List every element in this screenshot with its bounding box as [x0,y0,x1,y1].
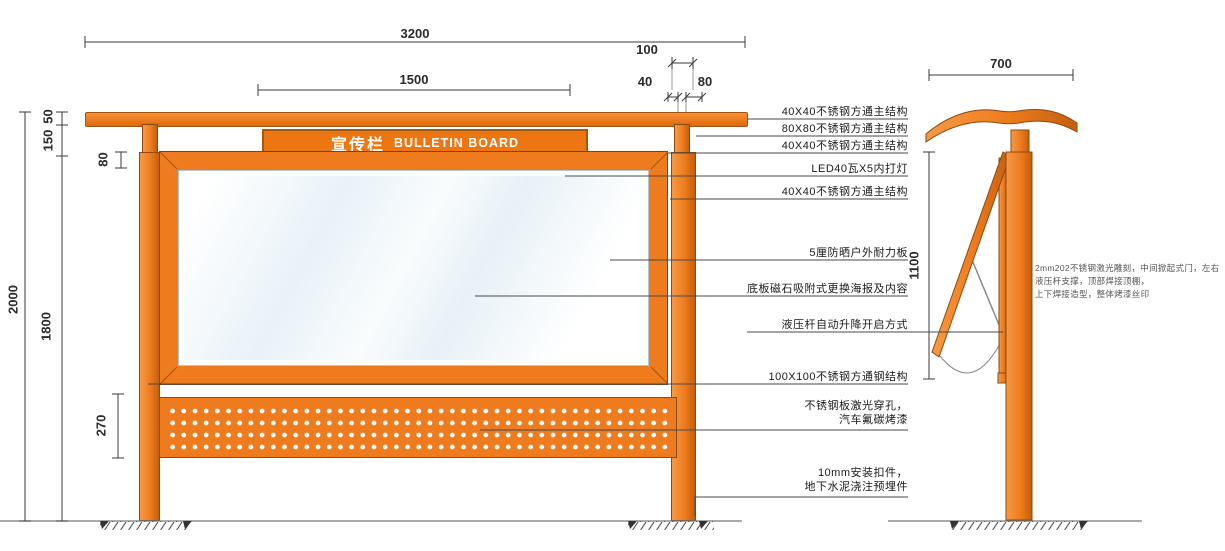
bulletin-board-drawing: 宣传栏 BULLETIN BOARD [0,0,1225,551]
annotation-anchor-line2: 地下水泥浇注预埋件 [805,481,909,493]
frame-bevels [160,152,668,384]
annotation-40x40-tube-1: 40X40不锈钢方通主结构 [782,106,908,118]
door-swing-arc [940,336,1004,373]
annotation-hydraulic-open: 液压杆自动升降开启方式 [782,319,909,331]
dim-40: 40 [625,74,665,89]
dim-150: 150 [41,111,56,171]
dim-3200: 3200 [365,26,465,41]
dim-1800: 1800 [39,297,54,357]
annotation-anchor: 10mm安装扣件， 地下水泥浇注预埋件 [805,467,909,495]
ground-hatching [100,521,1088,530]
side-process-note: 2mm202不锈钢激光雕刻，中间掀起式门，左右 液压杆支撑，顶部焊接顶棚， 上下… [1035,262,1225,301]
annotation-perforation-line2: 汽车氟碳烤漆 [805,414,909,426]
annotation-100x100-structure: 100X100不锈钢方通钢结构 [768,371,908,383]
leader-lines [148,119,1003,516]
annotation-magnet-poster: 底板磁石吸附式更换海报及内容 [747,283,908,295]
side-post-stub [1011,130,1029,154]
dim-80-top: 80 [685,74,725,89]
annotation-40x40-tube-3: 40X40不锈钢方通主结构 [782,186,908,198]
side-post [1006,152,1032,520]
dim-100: 100 [622,42,672,57]
side-note-line1: 2mm202不锈钢激光雕刻，中间掀起式门，左右 [1035,262,1225,275]
annotation-anchor-line1: 10mm安装扣件， [805,467,909,479]
dim-1500: 1500 [364,72,464,87]
side-note-line2: 液压杆支撑，顶部焊接顶棚， [1035,275,1225,288]
side-lifted-door [932,152,1010,357]
dim-270: 270 [94,396,109,456]
dim-80-left: 80 [96,130,111,190]
side-canopy-wing [926,110,1077,143]
hydraulic-rod [970,255,1002,332]
side-view [926,110,1077,521]
annotation-80x80-tube: 80X80不锈钢方通主结构 [782,123,908,135]
dim-2000: 2000 [6,270,21,330]
annotation-40x40-tube-2: 40X40不锈钢方通主结构 [782,140,908,152]
dim-1100: 1100 [907,236,922,296]
annotation-led-light: LED40瓦X5内打灯 [811,163,908,175]
annotation-perforation-line1: 不锈钢板激光穿孔， [805,400,909,412]
side-note-line3: 上下焊接造型，整体烤漆丝印 [1035,288,1225,301]
annotation-endurance-board: 5厘防晒户外耐力板 [809,247,908,259]
dim-700: 700 [951,56,1051,71]
annotation-perforation: 不锈钢板激光穿孔， 汽车氟碳烤漆 [805,400,909,428]
